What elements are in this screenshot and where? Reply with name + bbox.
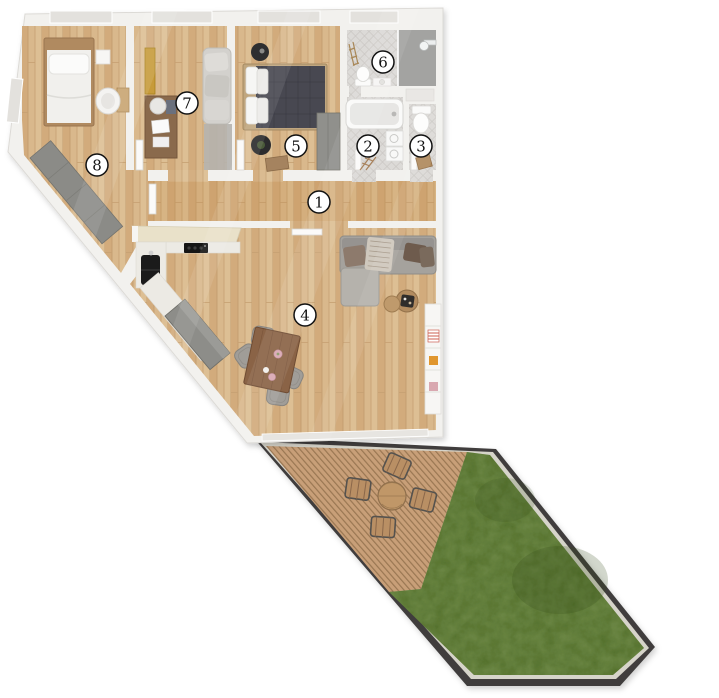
tray-item [409, 302, 412, 305]
room-badge-4-living-room: 4 [294, 304, 316, 326]
laptop-room7 [151, 119, 169, 134]
door-gap-room7 [168, 169, 208, 182]
coffee-table-tray [400, 294, 415, 308]
terrace-chair [345, 477, 372, 500]
room-badge-6-shower-room: 6 [372, 51, 394, 73]
book-room7 [166, 100, 176, 114]
kitchen-cabinet-cap [132, 226, 138, 242]
tray-item [404, 298, 407, 301]
decor-on-nightstand [260, 49, 265, 54]
room-badge-3-wc: 3 [410, 135, 432, 157]
window-room8 [50, 11, 112, 23]
room-badge-7-bedroom: 7 [176, 92, 198, 114]
room-badge-label: 2 [363, 137, 373, 155]
room-badge-label: 6 [378, 53, 388, 71]
rug-room7 [204, 124, 232, 170]
room-badge-label: 8 [92, 156, 102, 174]
room-badge-label: 5 [291, 137, 301, 155]
bath-niche-shelf [406, 89, 434, 101]
floor-plan-canvas: 1 2 3 4 5 6 7 8 [0, 0, 719, 698]
lounge-chair-room7 [203, 48, 231, 124]
room-badge-label: 7 [182, 94, 192, 112]
room-badge-label: 4 [300, 306, 310, 324]
room-badge-8-bedroom: 8 [86, 154, 108, 176]
room-badge-1-hallway: 1 [308, 191, 330, 213]
grass-dark-patch [475, 478, 535, 522]
room-badge-label: 3 [416, 137, 426, 155]
terrace-chair [370, 516, 395, 538]
room-badge-label: 1 [314, 193, 324, 211]
storage-bench-room5 [265, 156, 289, 172]
terrace-garden [253, 437, 655, 686]
grass-dark-patch [512, 546, 608, 614]
shelf-item-pink [429, 382, 438, 391]
door-leaf-room7 [136, 140, 143, 170]
bed-single-room8 [44, 38, 94, 126]
coffee-table-small [384, 296, 400, 312]
papers-room7 [153, 137, 169, 147]
ladder-shelf [425, 304, 441, 414]
shelf-jar-orange [429, 356, 438, 365]
room-badge-5-bedroom: 5 [285, 135, 307, 157]
washer-dryer-stack-room2 [386, 131, 403, 161]
desk-chair-room7 [150, 98, 166, 114]
sofa-pillow-taupe [343, 245, 368, 268]
door-leaf-room8 [149, 184, 156, 214]
nightstand-room8 [96, 50, 110, 64]
floor-plan-svg: 1 2 3 4 5 6 7 8 [0, 0, 719, 698]
room-badge-2-bathroom: 2 [357, 135, 379, 157]
sofa-pillow-dark [419, 246, 435, 267]
